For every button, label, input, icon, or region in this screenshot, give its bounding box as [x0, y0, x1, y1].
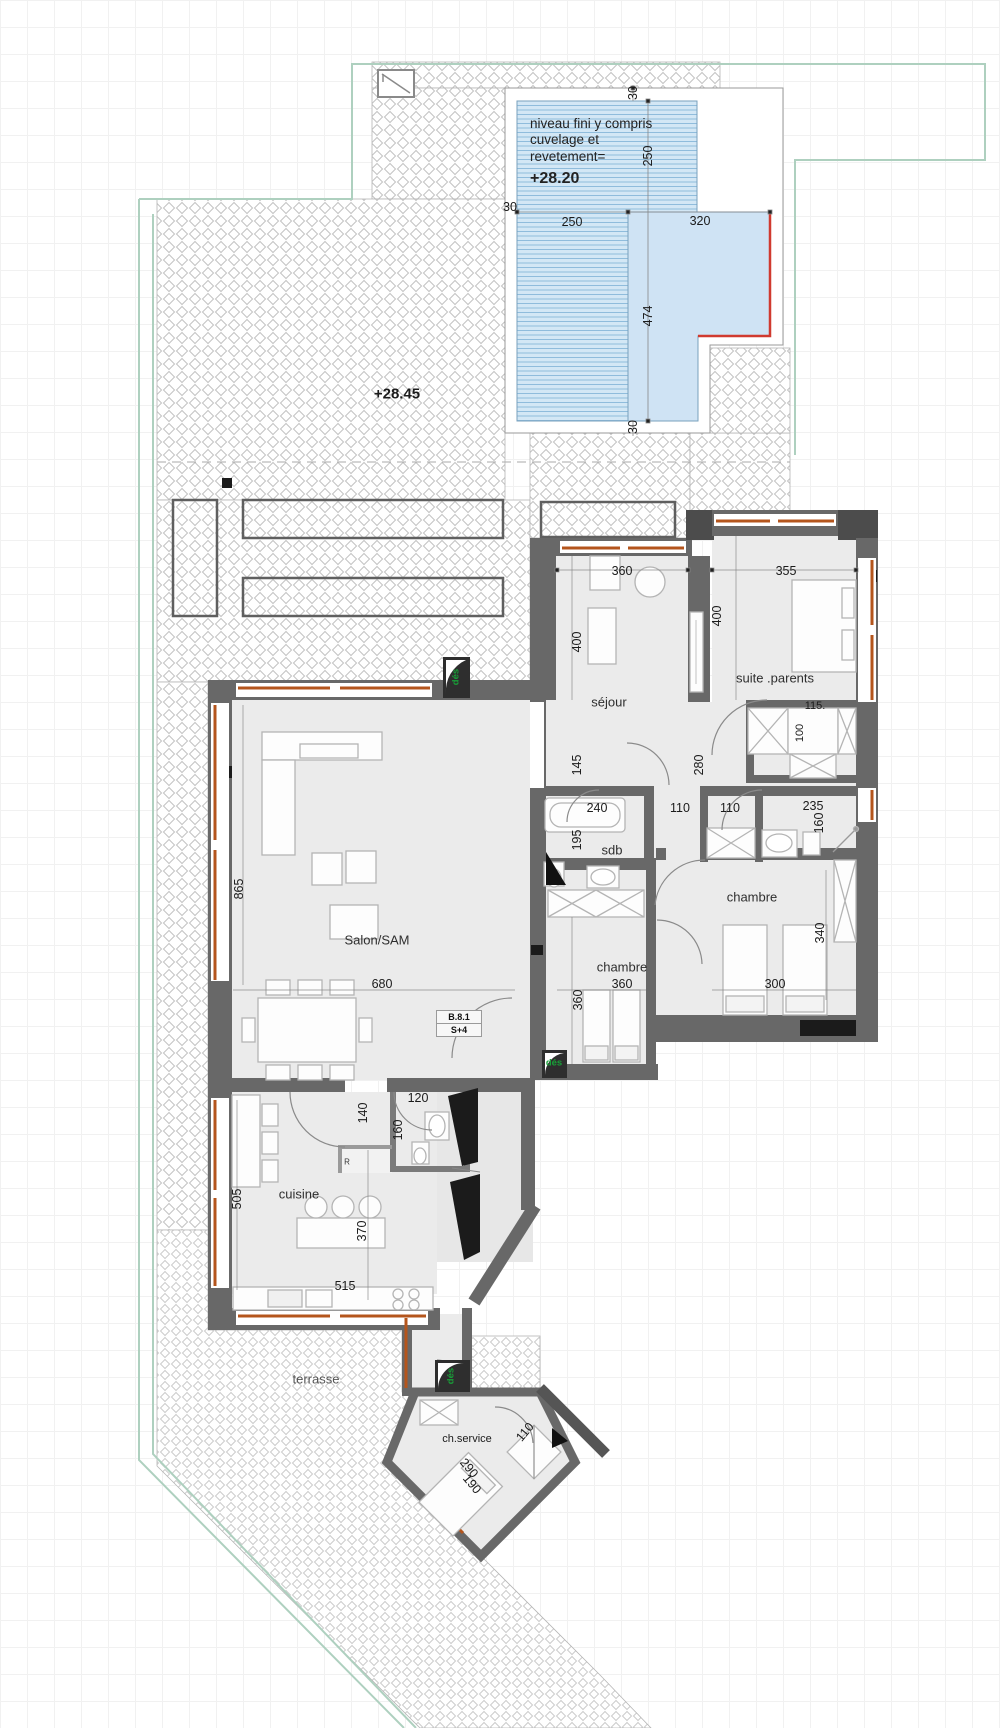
dim-sejour-w: 360 [612, 564, 633, 578]
pool-note-line3: revetement= [530, 149, 690, 165]
floor-plan-drawing [0, 0, 1000, 1728]
terrace-level: +28.45 [374, 386, 420, 403]
door-tag-des-3: dés [446, 1368, 457, 1384]
pool-level: +28.20 [530, 169, 579, 189]
dim-sejour-low: 145 [570, 755, 584, 776]
dim-island: 370 [355, 1221, 369, 1242]
pouf [635, 567, 665, 597]
dim-chambre-mid-w: 360 [612, 977, 633, 991]
dim-closet-w: 115. [805, 700, 826, 712]
dim-sdb-h: 195 [570, 830, 584, 851]
dim-pool-length: 474 [641, 306, 655, 327]
dim-pool-width-upper: 250 [641, 146, 655, 167]
room-sejour: séjour [591, 695, 626, 710]
dim-salon-h: 865 [232, 879, 246, 900]
room-chambre-mid: chambre [597, 960, 648, 975]
unit-label-box: B.8.1 S+4 [436, 1010, 482, 1037]
room-salon: Salon/SAM [344, 933, 409, 948]
pool-note-line2: cuvelage et [530, 132, 690, 148]
door-tag-des-2: dés [546, 1058, 562, 1069]
pool-note-line1: niveau fini y compris [530, 116, 690, 132]
room-suite-parents: suite .parents [736, 671, 814, 686]
floor-plan-canvas: niveau fini y compris cuvelage et revete… [0, 0, 1000, 1728]
room-cuisine: cuisine [279, 1187, 319, 1202]
toilet [803, 832, 820, 855]
armchair [346, 851, 376, 883]
dim-wc-h: 160 [391, 1120, 405, 1141]
dim-closet-h: 100 [794, 724, 806, 742]
roof-hatch-icon [378, 70, 414, 97]
dim-bath2-w: 235 [803, 799, 824, 813]
door-tag-des-1: dés [451, 669, 462, 685]
dim-tub: 240 [587, 801, 608, 815]
dim-bath2-h: 160 [812, 813, 826, 834]
dim-hall-b: 110 [720, 801, 740, 815]
dim-sejour-h: 400 [570, 632, 584, 653]
room-chambre-right: chambre [727, 890, 778, 905]
dining-table [258, 998, 356, 1062]
dim-wc-w: 120 [408, 1091, 429, 1105]
dim-pool-gap-bottom: 30 [626, 420, 640, 434]
unit-code: B.8.1 [437, 1011, 481, 1024]
dim-suite-h: 400 [710, 606, 724, 627]
dim-pool-w1: 250 [562, 215, 583, 229]
dim-hall-a: 110 [670, 801, 690, 815]
room-service: ch.service [442, 1433, 492, 1445]
dim-cuisine-w: 515 [335, 1279, 356, 1293]
dim-pool-gap-top: 30 [626, 86, 640, 100]
dim-chambre-right-h: 340 [813, 923, 827, 944]
kitchen-table [232, 1095, 260, 1187]
room-terrasse: terrasse [293, 1372, 340, 1387]
room-reserve: R [344, 1158, 350, 1167]
dim-chambre-mid-h: 360 [571, 990, 585, 1011]
dim-pool-gap-left: 30 [503, 200, 517, 214]
pool-note: niveau fini y compris cuvelage et revete… [530, 116, 690, 189]
dim-salon-w: 680 [372, 977, 393, 991]
dim-chambre-right-w: 300 [765, 977, 786, 991]
dim-pool-w2: 320 [690, 214, 711, 228]
kitchen-island [297, 1218, 385, 1248]
armchair [312, 853, 342, 885]
dim-suite-w: 355 [776, 564, 797, 578]
room-sdb: sdb [602, 843, 623, 858]
dim-passage: 140 [356, 1103, 370, 1124]
unit-floor: S+4 [437, 1024, 481, 1036]
dim-hall-door: 280 [692, 755, 706, 776]
dim-cuisine-h: 505 [230, 1189, 244, 1210]
